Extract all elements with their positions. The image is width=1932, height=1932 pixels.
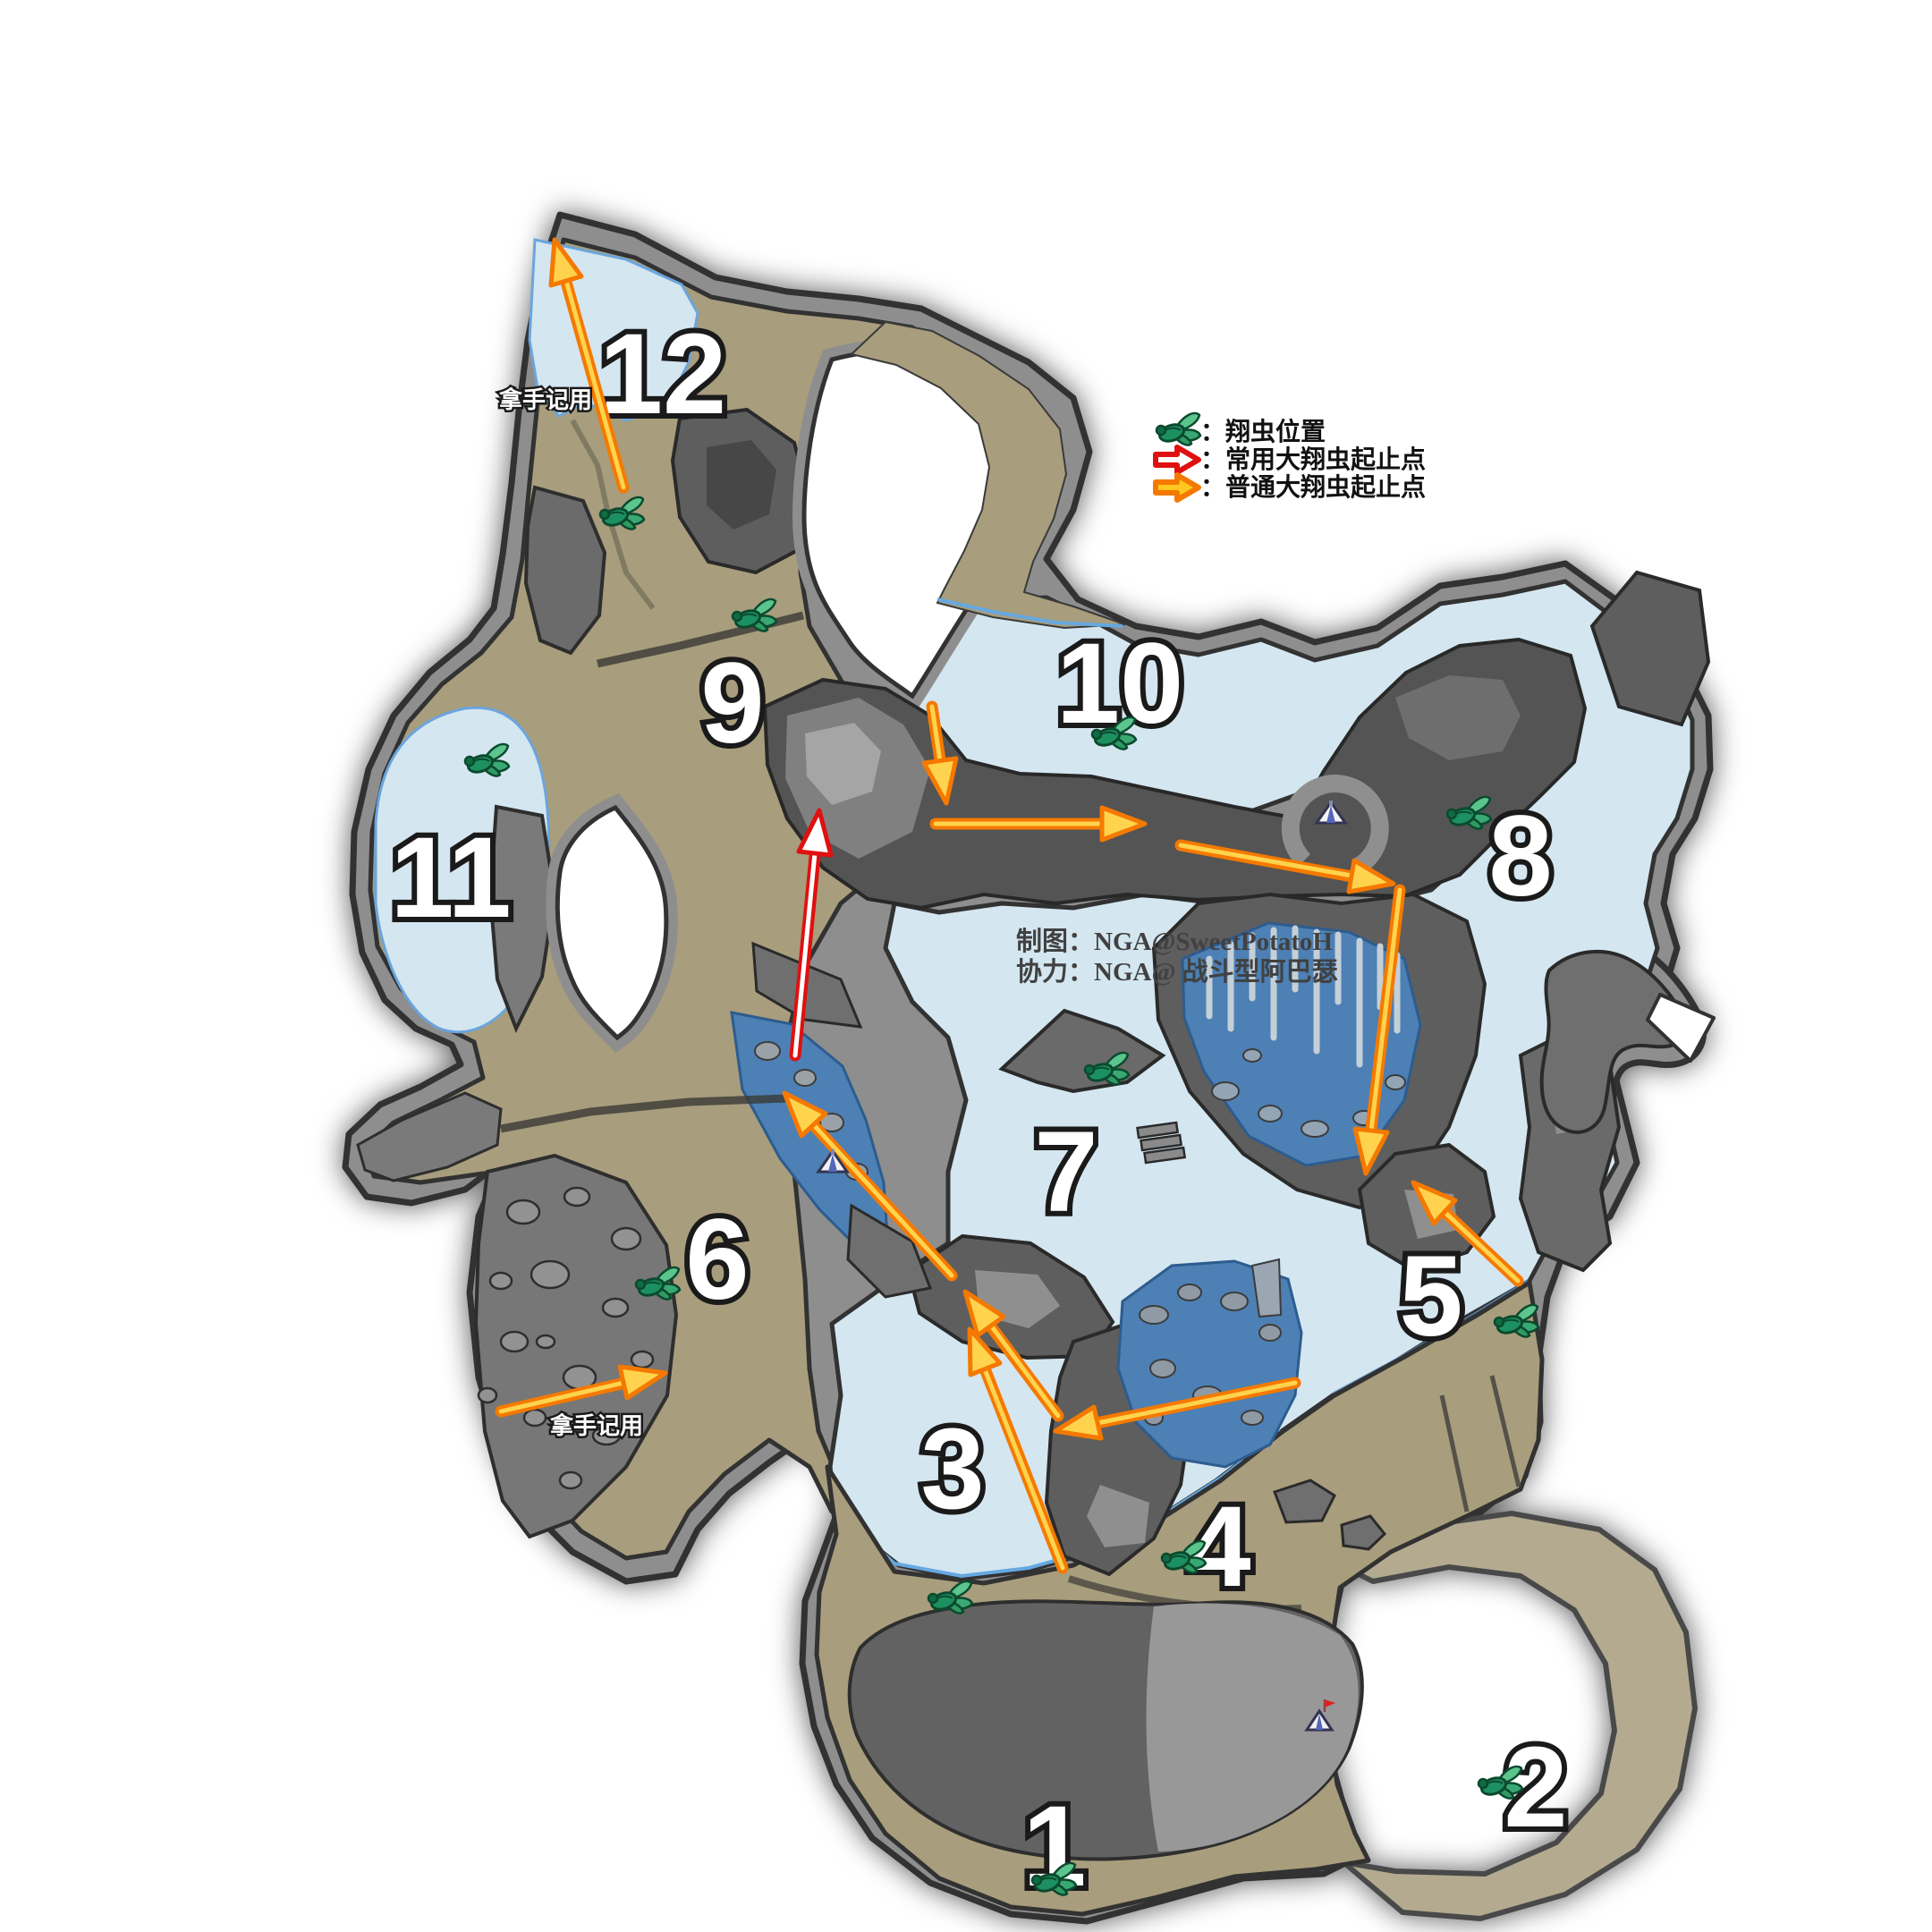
svg-text:8: 8 [1488, 792, 1552, 920]
svg-text:7: 7 [1034, 1108, 1097, 1236]
svg-text:制图：NGA@SweetPotatoH: 制图：NGA@SweetPotatoH [1016, 927, 1333, 956]
svg-text:拿手记用: 拿手记用 [498, 386, 592, 413]
svg-text:：翔虫位置: ：翔虫位置 [1200, 417, 1326, 445]
svg-text:协力：NGA@ 战斗型阿巴瑟: 协力：NGA@ 战斗型阿巴瑟 [1016, 957, 1338, 987]
svg-text:5: 5 [1399, 1233, 1462, 1360]
svg-text:拿手记用: 拿手记用 [549, 1412, 643, 1439]
svg-text:3: 3 [920, 1405, 984, 1533]
svg-text:：普通大翔虫起止点: ：普通大翔虫起止点 [1200, 473, 1426, 501]
svg-text:6: 6 [685, 1196, 749, 1324]
svg-text:12: 12 [599, 310, 726, 438]
svg-text:11: 11 [390, 814, 511, 942]
svg-text:：常用大翔虫起止点: ：常用大翔虫起止点 [1200, 445, 1426, 473]
svg-text:9: 9 [700, 640, 764, 767]
